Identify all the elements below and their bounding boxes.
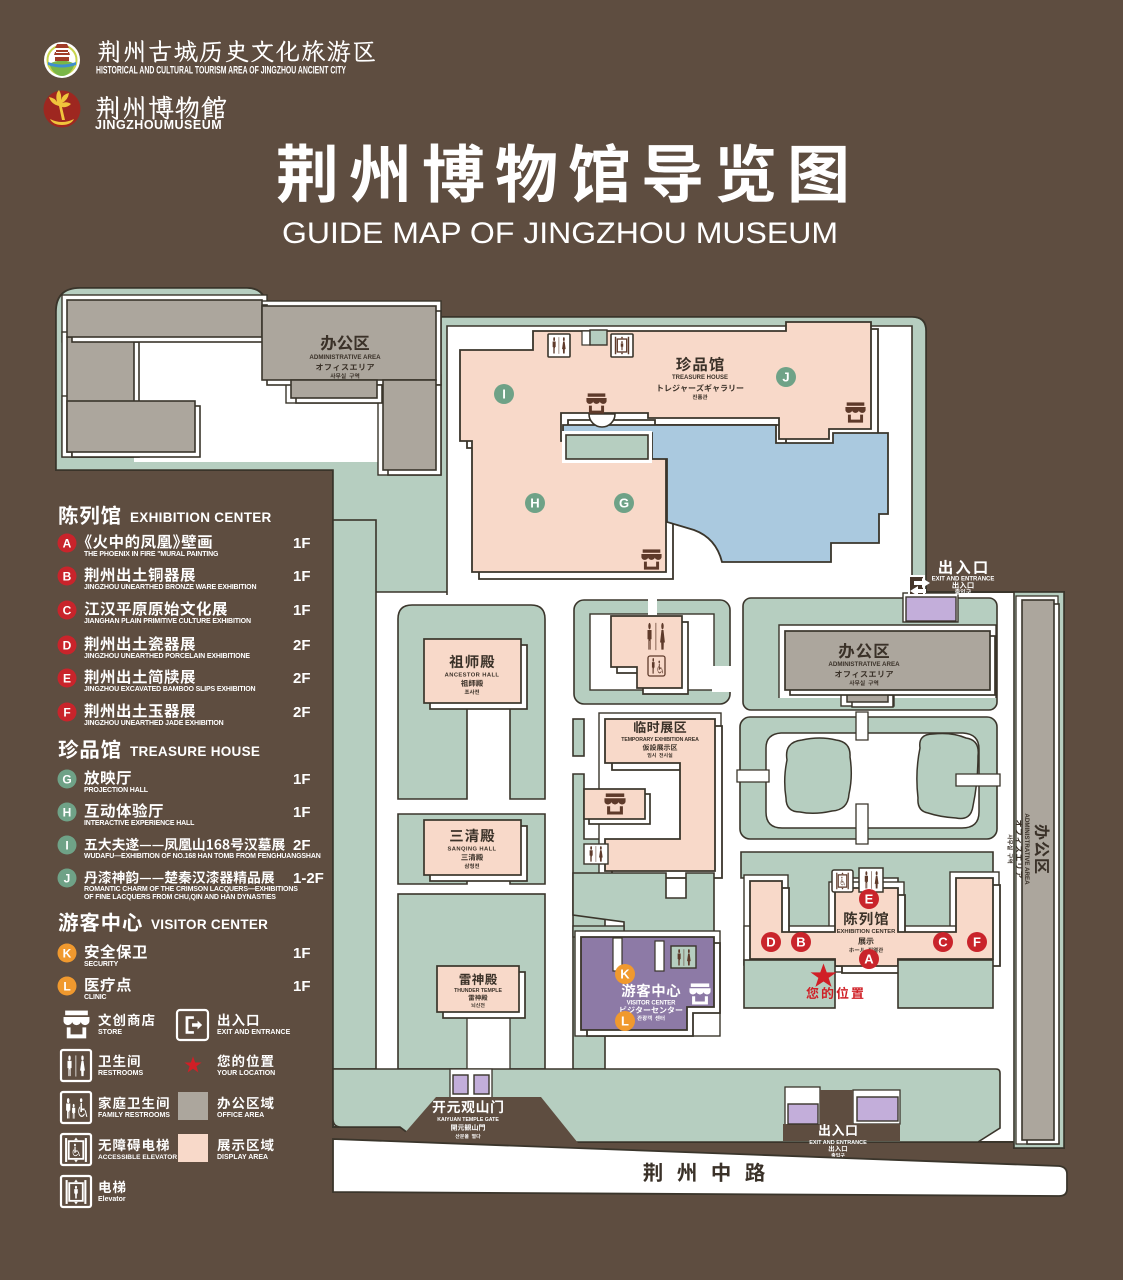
svg-text:KAIYUAN TEMPLE GATE: KAIYUAN TEMPLE GATE (437, 1117, 499, 1123)
svg-text:K: K (620, 967, 630, 982)
svg-text:E: E (865, 892, 874, 907)
svg-text:1F: 1F (293, 945, 311, 962)
svg-text:TREASURE HOUSE: TREASURE HOUSE (672, 375, 728, 381)
svg-text:JINGZHOU UNEARTHED JADE EXHIBI: JINGZHOU UNEARTHED JADE EXHIBITION (84, 720, 224, 727)
svg-text:SECURITY: SECURITY (84, 961, 119, 968)
svg-text:RESTROOMS: RESTROOMS (98, 1070, 143, 1077)
svg-text:C: C (63, 603, 72, 617)
svg-text:D: D (766, 935, 775, 950)
svg-text:ANCESTOR HALL: ANCESTOR HALL (445, 673, 500, 679)
svg-text:EXIT AND ENTRANCE: EXIT AND ENTRANCE (932, 577, 995, 583)
svg-text:B: B (796, 935, 805, 950)
svg-text:YOUR LOCATION: YOUR LOCATION (217, 1070, 275, 1077)
svg-text:D: D (63, 638, 72, 652)
svg-text:2F: 2F (293, 637, 311, 654)
svg-text:H: H (63, 805, 72, 819)
svg-text:C: C (938, 935, 948, 950)
svg-text:EXHIBITION CENTER: EXHIBITION CENTER (837, 929, 896, 935)
svg-text:EXHIBITION CENTER: EXHIBITION CENTER (130, 510, 272, 525)
svg-text:EXIT AND ENTRANCE: EXIT AND ENTRANCE (217, 1029, 291, 1036)
svg-text:JIANGHAN PLAIN PRIMITIVE CULTU: JIANGHAN PLAIN PRIMITIVE CULTURE EXHIBIT… (84, 618, 251, 625)
svg-text:INTERACTIVE EXPERIENCE HALL: INTERACTIVE EXPERIENCE HALL (84, 820, 195, 827)
svg-text:I: I (502, 387, 506, 402)
svg-text:JINGZHOU UNEARTHED PORCELAIN E: JINGZHOU UNEARTHED PORCELAIN EXHIBITIONE (84, 653, 250, 660)
svg-text:I: I (65, 838, 68, 852)
svg-text:HISTORICAL AND CULTURAL TOURIS: HISTORICAL AND CULTURAL TOURISM AREA OF … (96, 65, 346, 77)
svg-text:Elevator: Elevator (98, 1196, 126, 1203)
svg-text:EXIT AND ENTRANCE: EXIT AND ENTRANCE (809, 1140, 867, 1146)
svg-text:E: E (63, 671, 71, 685)
svg-text:G: G (619, 496, 629, 511)
svg-text:1F: 1F (293, 535, 311, 552)
svg-text:THUNDER TEMPLE: THUNDER TEMPLE (454, 988, 502, 994)
svg-text:1F: 1F (293, 978, 311, 995)
svg-text:2F: 2F (293, 670, 311, 687)
svg-text:G: G (62, 772, 71, 786)
svg-text:TREASURE HOUSE: TREASURE HOUSE (130, 744, 260, 759)
svg-text:WUDAFU—EXHIBITION OF NO.168 HA: WUDAFU—EXHIBITION OF NO.168 HAN TOMB FRO… (84, 853, 321, 860)
svg-text:1-2F: 1-2F (293, 870, 324, 887)
svg-text:JINGZHOU EXCAVATED BAMBOO SLIP: JINGZHOU EXCAVATED BAMBOO SLIPS EXHIBITI… (84, 686, 256, 693)
svg-text:1F: 1F (293, 804, 311, 821)
svg-text:F: F (63, 705, 70, 719)
svg-text:J: J (782, 370, 789, 385)
svg-text:ADMINISTRATIVE AREA: ADMINISTRATIVE AREA (1023, 813, 1030, 885)
svg-text:OF FINE LACQUERS FROM CHU,QIN: OF FINE LACQUERS FROM CHU,QIN AND HAN DY… (84, 894, 276, 901)
svg-text:JINGZHOUMUSEUM: JINGZHOUMUSEUM (95, 118, 222, 132)
svg-text:ACCESSIBLE ELEVATOR: ACCESSIBLE ELEVATOR (98, 1154, 177, 1161)
svg-text:A: A (864, 952, 874, 967)
svg-text:2F: 2F (293, 704, 311, 721)
svg-text:H: H (530, 496, 539, 511)
svg-text:2F: 2F (293, 837, 311, 854)
svg-text:L: L (621, 1014, 629, 1029)
svg-text:B: B (63, 569, 72, 583)
svg-text:JINGZHOU UNEARTHED BRONZE WARE: JINGZHOU UNEARTHED BRONZE WARE EXHIBITIO… (84, 584, 256, 591)
svg-text:ADMINISTRATIVE AREA: ADMINISTRATIVE AREA (828, 661, 900, 668)
svg-text:ADMINISTRATIVE AREA: ADMINISTRATIVE AREA (309, 354, 381, 361)
svg-text:TEMPORARY EXHIBITION AREA: TEMPORARY EXHIBITION AREA (621, 737, 699, 743)
svg-text:DISPLAY AREA: DISPLAY AREA (217, 1154, 268, 1161)
svg-text:SANQING HALL: SANQING HALL (448, 847, 497, 853)
svg-text:FAMILY RESTROOMS: FAMILY RESTROOMS (98, 1112, 170, 1119)
svg-text:OFFICE AREA: OFFICE AREA (217, 1112, 264, 1119)
svg-text:THE PHOENIX IN FIRE "MURAL PAI: THE PHOENIX IN FIRE "MURAL PAINTING (84, 551, 219, 558)
svg-text:PROJECTION HALL: PROJECTION HALL (84, 787, 149, 794)
svg-text:STORE: STORE (98, 1029, 122, 1036)
svg-text:A: A (63, 536, 72, 550)
svg-text:F: F (973, 935, 981, 950)
svg-text:VISITOR CENTER: VISITOR CENTER (151, 917, 268, 932)
svg-text:K: K (63, 946, 72, 960)
svg-text:J: J (64, 871, 71, 885)
svg-text:ROMANTIC CHARM OF THE CRIMSON: ROMANTIC CHARM OF THE CRIMSON LACQUERS—E… (84, 886, 298, 893)
svg-text:GUIDE MAP OF JINGZHOU MUSEUM: GUIDE MAP OF JINGZHOU MUSEUM (282, 217, 838, 250)
svg-text:1F: 1F (293, 602, 311, 619)
svg-text:L: L (63, 979, 70, 993)
svg-text:1F: 1F (293, 568, 311, 585)
svg-text:CLINIC: CLINIC (84, 994, 107, 1001)
svg-text:1F: 1F (293, 771, 311, 788)
svg-text:VISITOR CENTER: VISITOR CENTER (627, 1001, 677, 1007)
